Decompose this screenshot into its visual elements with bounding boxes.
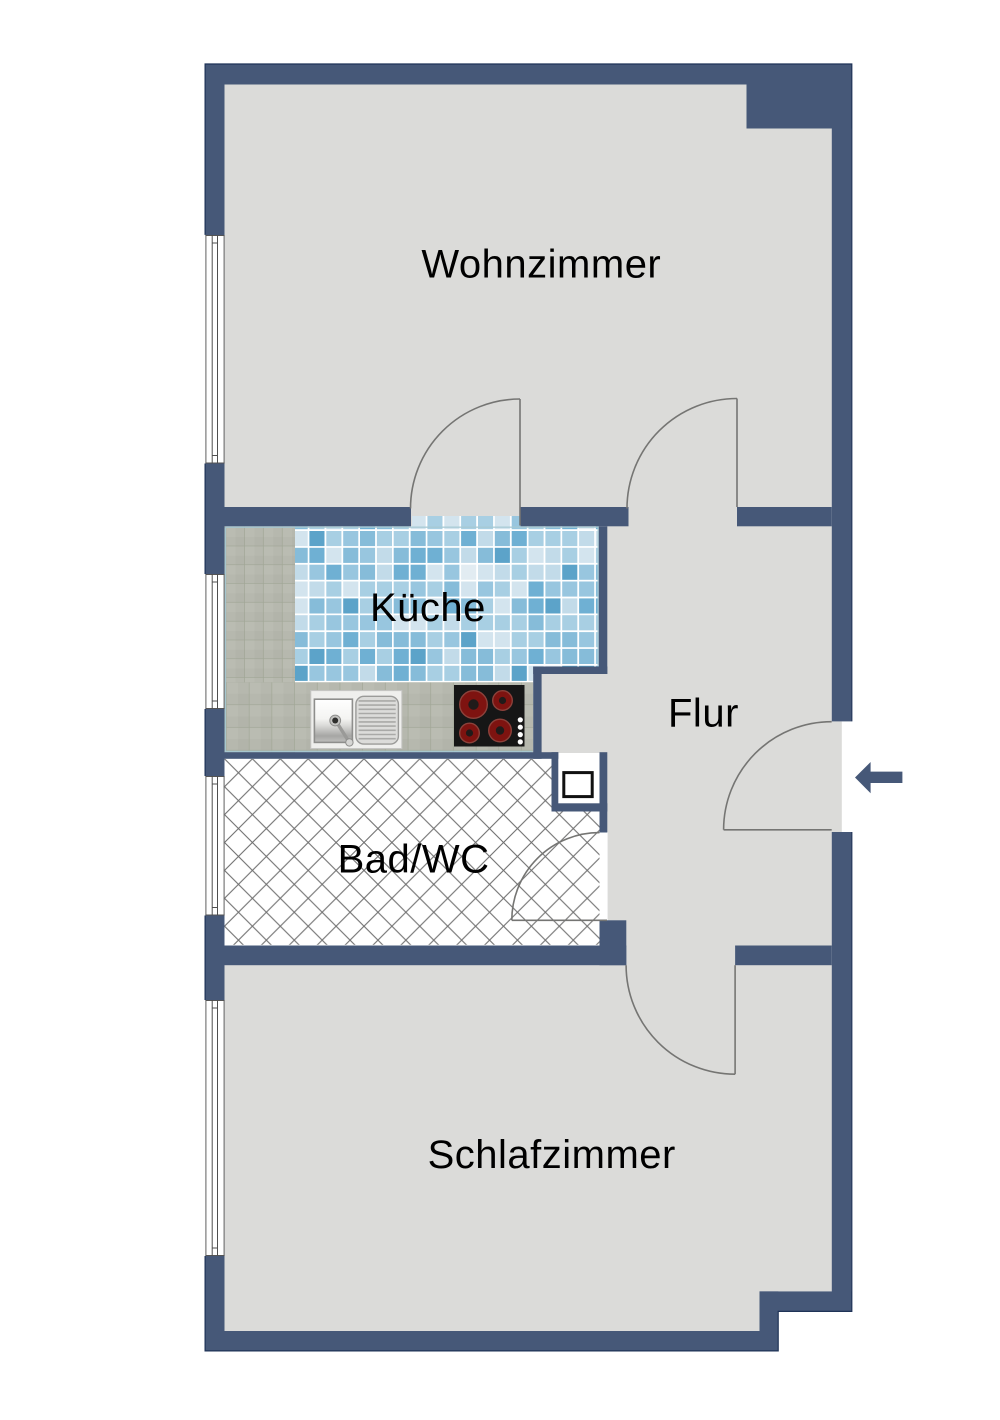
svg-text:Wohnzimmer: Wohnzimmer [421,243,661,287]
svg-text:Flur: Flur [668,692,739,736]
svg-text:Bad/WC: Bad/WC [338,838,490,882]
svg-text:Schlafzimmer: Schlafzimmer [428,1133,676,1177]
svg-text:Küche: Küche [370,586,486,630]
